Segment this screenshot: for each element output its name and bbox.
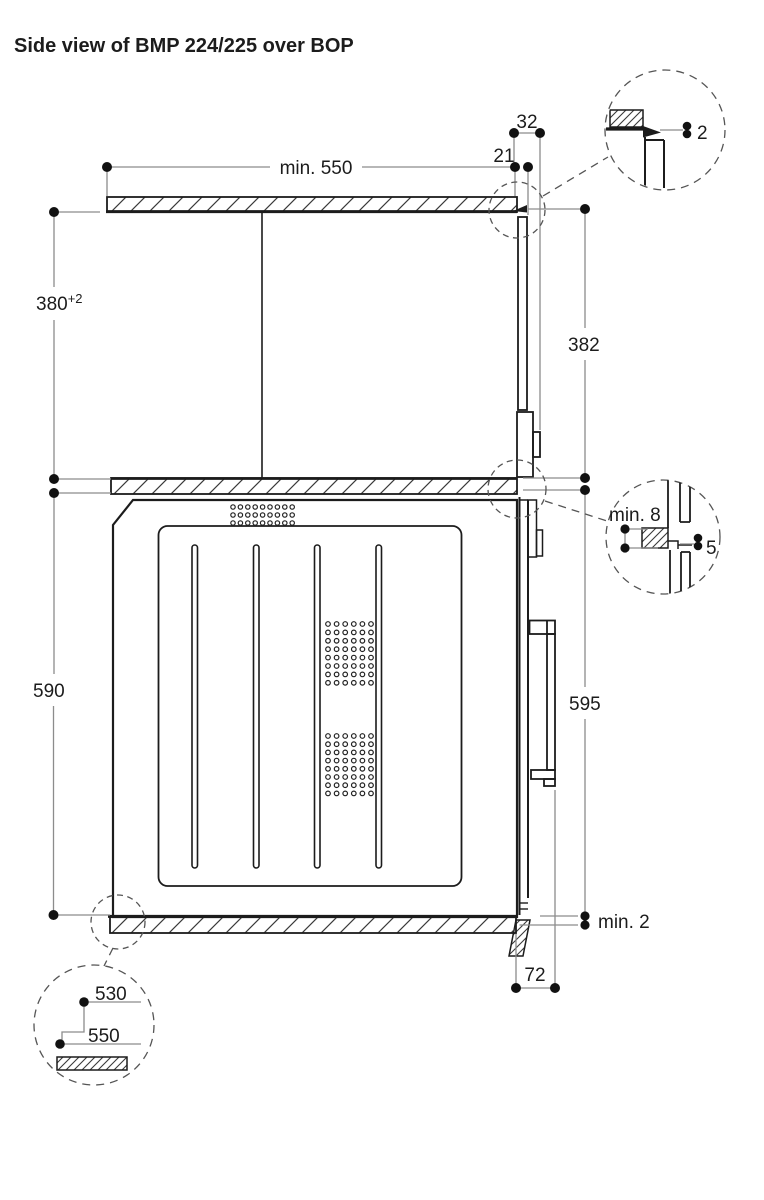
dim-right-lower: 595: [569, 694, 601, 715]
dim-upper-niche: 380+2: [36, 291, 83, 315]
cabinet-floor: [108, 916, 516, 933]
detail-front-gap-label: 5: [706, 538, 717, 559]
dim-top-offset: 32: [516, 112, 537, 133]
detail-counter-depth-label: 550: [88, 1026, 120, 1047]
oven-door: [509, 497, 543, 956]
detail-top-right: [606, 110, 691, 188]
dim-top-width: min. 550: [280, 158, 353, 179]
main-structure: [106, 197, 555, 956]
diagram-page: Side view of BMP 224/225 over BOP: [0, 0, 764, 1200]
dim-bottom-gap: min. 2: [598, 912, 650, 933]
detail-inner-depth-label: 530: [95, 984, 127, 1005]
middle-shelf: [111, 478, 517, 494]
upper-appliance-door: [517, 217, 540, 477]
dimension-labels: min. 550 32 21 380+2 382 590 595 min. 2 …: [33, 112, 650, 986]
detail-middle-right: [620, 480, 702, 595]
dim-door-protrusion: 72: [524, 965, 545, 986]
detail-shelf-overhang-label: min. 8: [609, 505, 661, 526]
oven-top-vent-holes: [231, 505, 295, 525]
detail-gap-label: 2: [697, 123, 708, 144]
dim-right-upper: 382: [568, 335, 600, 356]
top-shelf: [106, 197, 527, 213]
oven-mid-vent-holes-lower: [326, 734, 374, 796]
oven-vent-slots: [192, 545, 382, 868]
technical-drawing: Side view of BMP 224/225 over BOP: [0, 0, 764, 1200]
page-title: Side view of BMP 224/225 over BOP: [14, 35, 354, 57]
oven-mid-vent-holes-upper: [326, 622, 374, 685]
dim-top-gap: 21: [493, 146, 514, 167]
oven-front-panel: [159, 526, 462, 886]
oven-door-handle: [530, 621, 556, 787]
oven-body: [113, 500, 517, 917]
dim-lower-niche: 590: [33, 681, 65, 702]
